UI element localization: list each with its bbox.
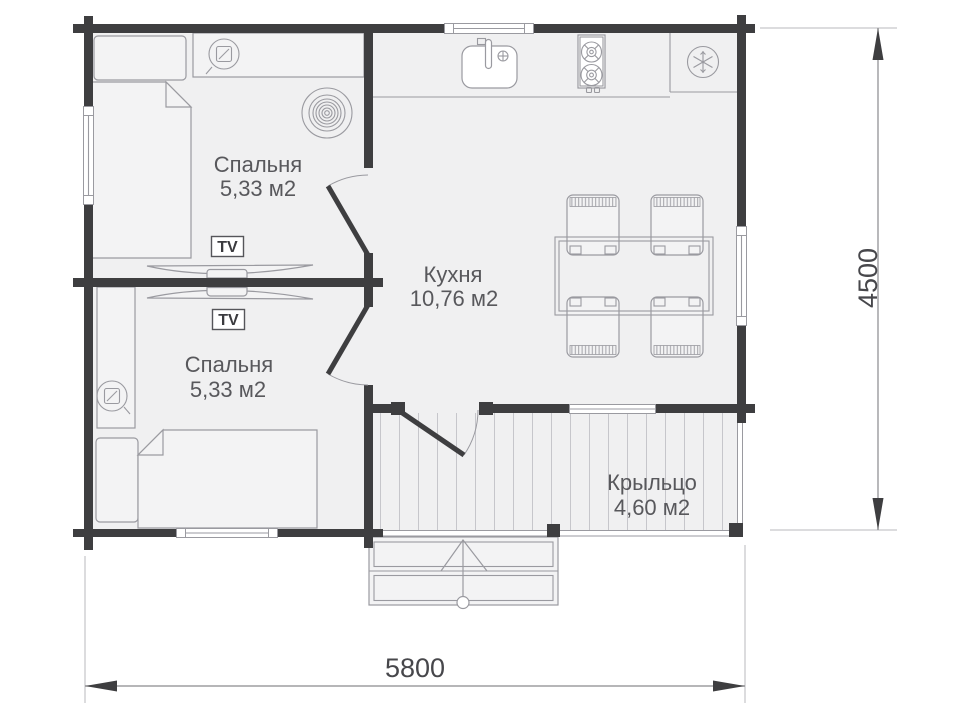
tv-stand-icon	[207, 288, 247, 297]
wall-top	[73, 24, 445, 33]
wall-inner-mullion	[364, 253, 373, 307]
pillow-icon	[94, 36, 186, 80]
dimension-width-value: 5800	[385, 653, 445, 683]
wall-bottom	[73, 529, 177, 537]
tv-label: TV	[217, 239, 238, 256]
dimension-arrow-icon	[85, 681, 117, 692]
pillow-icon	[96, 438, 138, 522]
bed-icon	[96, 430, 317, 528]
floor-plan: Спальня 5,33 м2 Спальня 5,33 м2 Кухня 10…	[0, 0, 960, 720]
window-icon	[737, 227, 747, 326]
floor-plan-canvas: Спальня 5,33 м2 Спальня 5,33 м2 Кухня 10…	[0, 0, 960, 720]
tv-label: TV	[218, 312, 239, 329]
wall-top	[533, 24, 755, 33]
wall-bottom	[277, 529, 383, 537]
wall-kitchen-porch	[493, 404, 570, 413]
chair-icon	[651, 195, 703, 255]
room-area-bedroom-bottom: 5,33 м2	[190, 377, 266, 402]
wall-porch-left	[364, 413, 373, 548]
door-jamb-post	[479, 402, 493, 415]
tv-stand-icon	[207, 270, 247, 279]
window-icon	[445, 24, 534, 34]
bed-icon	[91, 36, 191, 258]
tv-label-box: TV	[213, 310, 245, 330]
sink-icon	[462, 39, 517, 89]
room-label-porch: Крыльцо	[607, 470, 697, 495]
porch-post	[547, 524, 560, 537]
wall-inner	[364, 32, 373, 168]
porch-post	[729, 523, 743, 537]
stove-icon	[578, 35, 605, 93]
window-icon	[570, 405, 656, 414]
wall-right	[737, 15, 746, 423]
room-label-bedroom-top: Спальня	[214, 152, 302, 177]
chair-icon	[567, 195, 619, 255]
window-icon	[84, 107, 94, 205]
chair-icon	[651, 297, 703, 357]
wall-kitchen-porch	[364, 404, 391, 413]
dimension-height-value: 4500	[853, 248, 883, 308]
room-label-kitchen: Кухня	[424, 262, 483, 287]
room-area-bedroom-top: 5,33 м2	[220, 176, 296, 201]
room-area-porch: 4,60 м2	[614, 495, 690, 520]
dimension-arrow-icon	[873, 28, 884, 60]
wall-bedroom-divider	[73, 278, 383, 287]
wall-kitchen-porch	[655, 404, 755, 413]
room-area-kitchen: 10,76 м2	[410, 286, 499, 311]
window-icon	[177, 529, 278, 538]
room-label-bedroom-bottom: Спальня	[185, 352, 273, 377]
dimension-arrow-icon	[713, 681, 745, 692]
tv-label-box: TV	[212, 237, 244, 257]
wardrobe-icon	[97, 287, 135, 428]
dimension-arrow-icon	[873, 498, 884, 530]
chair-icon	[567, 297, 619, 357]
entry-steps	[369, 537, 558, 609]
